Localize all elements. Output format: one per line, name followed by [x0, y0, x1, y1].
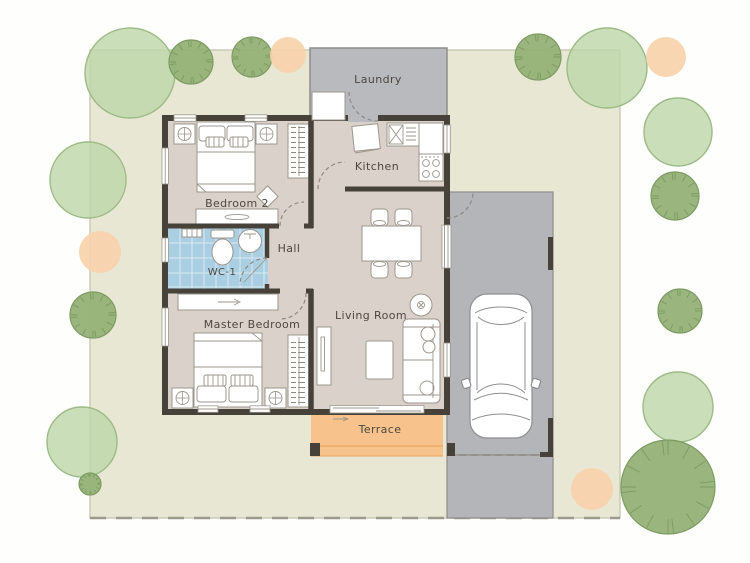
tree-light-icon: [644, 98, 712, 166]
label-hall: Hall: [278, 242, 301, 255]
bedroom2-wardrobe: [288, 124, 310, 178]
kitchen-sink: [387, 123, 419, 146]
master-wardrobe: [288, 335, 310, 407]
sink: [239, 230, 262, 253]
label-bedroom2: Bedroom 2: [205, 197, 269, 210]
kitchen-counter: [419, 123, 443, 154]
sofa: [403, 319, 440, 403]
label-terrace: Terrace: [358, 423, 402, 436]
tree-light-icon: [567, 28, 647, 108]
floor-plan-canvas: Laundry Kitchen Bedroom 2 WC-1 Hall Mast…: [0, 0, 750, 563]
stove: [419, 154, 443, 181]
front-door: [442, 225, 451, 268]
coffee-table: [366, 341, 393, 379]
ceiling-lamp-icon: [174, 124, 195, 144]
driveway: [447, 455, 553, 518]
tree-light-icon: [50, 142, 126, 218]
master-dresser: [178, 294, 278, 310]
shrub: [270, 37, 306, 73]
tree-light-icon: [47, 407, 117, 477]
wc-shelf: [182, 229, 202, 237]
ceiling-lamp-icon: [256, 124, 277, 144]
tv-cabinet: [317, 327, 331, 385]
bedroom2-dresser: [196, 209, 278, 225]
fridge: [352, 124, 380, 152]
shrub: [79, 231, 121, 273]
label-kitchen: Kitchen: [355, 160, 399, 173]
laundry-door-gap: [348, 114, 378, 122]
ceiling-lamp-icon: [172, 388, 193, 408]
label-living: Living Room: [335, 309, 407, 322]
window: [162, 148, 169, 346]
sliding-door: [330, 406, 424, 414]
car: [461, 294, 541, 438]
terrace-wall-nub: [310, 443, 320, 456]
ceiling-lamp-icon: [265, 388, 286, 408]
label-wc: WC-1: [208, 267, 236, 278]
shrub: [571, 468, 613, 510]
label-master: Master Bedroom: [204, 318, 300, 331]
master-bed: [194, 333, 262, 407]
bedroom2-bed: [197, 122, 255, 192]
tree-light-icon: [85, 28, 175, 118]
floor-lamp: [410, 294, 432, 316]
toilet: [211, 230, 234, 265]
shrub: [646, 37, 686, 77]
tree-light-icon: [643, 372, 713, 442]
floor-plan: Laundry Kitchen Bedroom 2 WC-1 Hall Mast…: [0, 0, 750, 563]
laundry-closet: [312, 92, 345, 120]
label-laundry: Laundry: [354, 73, 402, 86]
